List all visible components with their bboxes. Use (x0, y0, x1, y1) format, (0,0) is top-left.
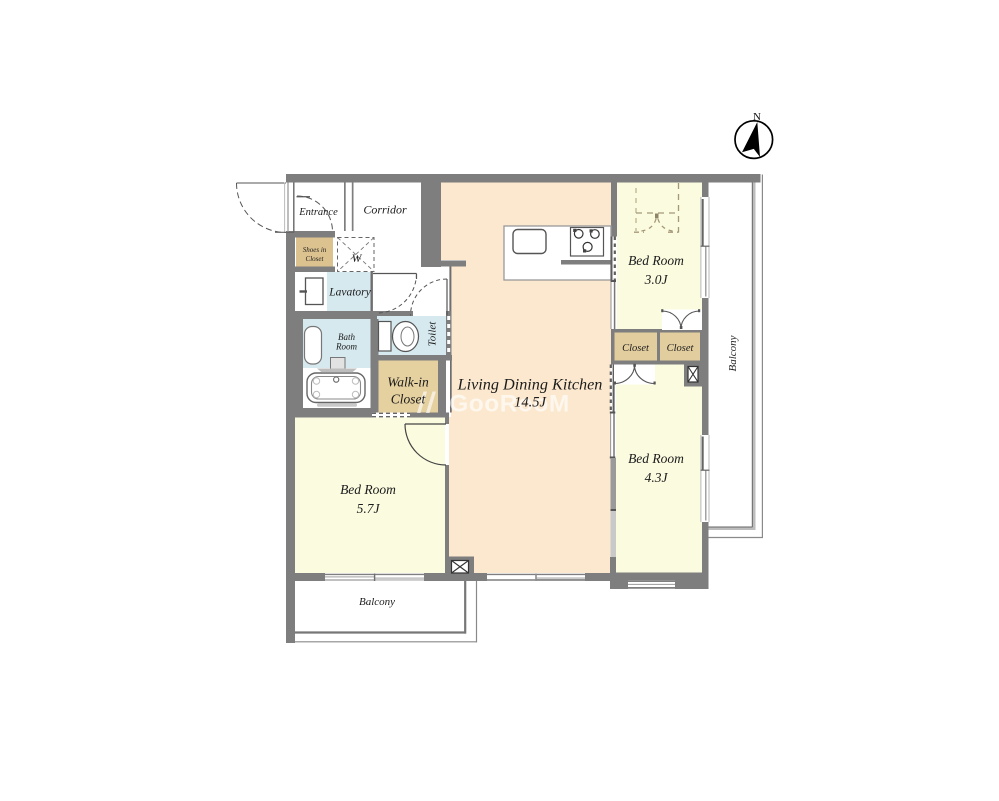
svg-text:Bed Room: Bed Room (628, 253, 684, 268)
svg-text:Balcony: Balcony (727, 335, 739, 371)
svg-text:4.3J: 4.3J (645, 470, 669, 485)
svg-text:Entrance: Entrance (298, 207, 338, 218)
svg-text:Lavatory: Lavatory (328, 287, 371, 299)
svg-text:14.5J: 14.5J (514, 395, 546, 411)
svg-text:Bath: Bath (338, 332, 355, 342)
svg-text:3.0J: 3.0J (644, 272, 669, 287)
svg-text:GooRooM: GooRooM (449, 391, 570, 418)
svg-text:5.7J: 5.7J (357, 501, 381, 516)
svg-text:W: W (352, 253, 363, 265)
svg-text:Balcony: Balcony (359, 596, 395, 608)
svg-text:Closet: Closet (391, 392, 427, 407)
svg-text:Corridor: Corridor (363, 203, 407, 217)
svg-text:Shoes in: Shoes in (303, 246, 327, 254)
svg-text:N: N (753, 111, 761, 123)
svg-text:Toilet: Toilet (427, 321, 439, 347)
svg-text:Closet: Closet (667, 343, 695, 354)
svg-text:Closet: Closet (622, 343, 650, 354)
svg-text:Room: Room (335, 342, 357, 352)
svg-text:Walk-in: Walk-in (387, 375, 429, 390)
svg-text:Bed Room: Bed Room (628, 451, 684, 466)
svg-text:Closet: Closet (306, 255, 325, 263)
svg-text:Bed Room: Bed Room (340, 482, 396, 497)
svg-text:Living Dining Kitchen: Living Dining Kitchen (457, 376, 603, 394)
